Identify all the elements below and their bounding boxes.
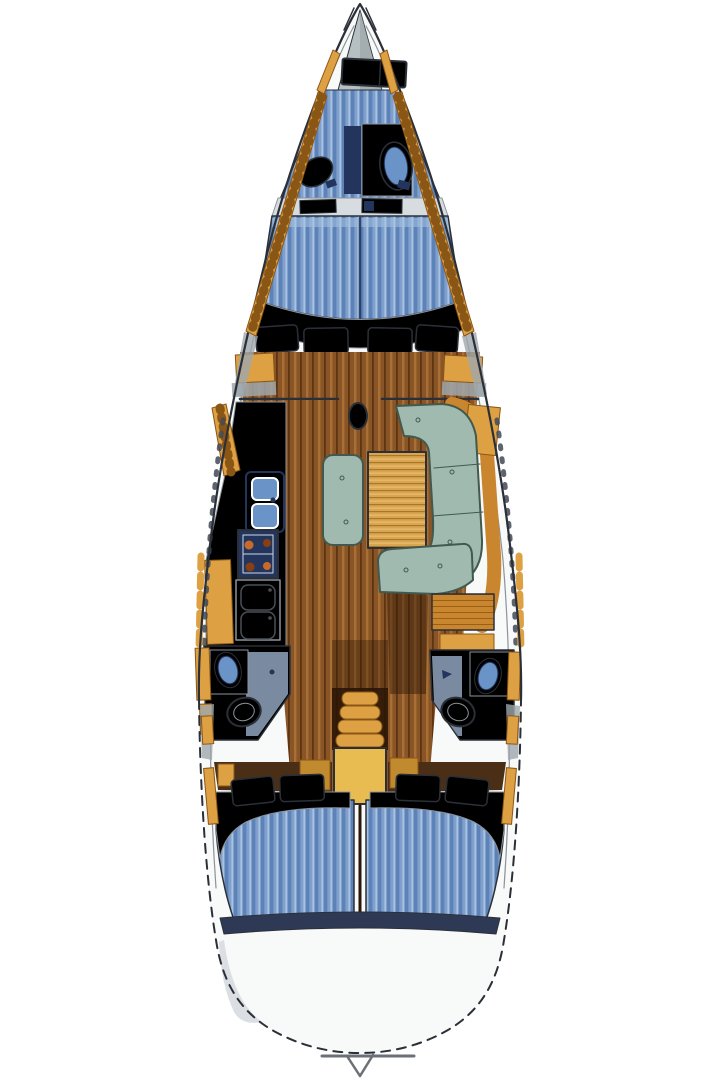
aft-locker-port [201, 716, 213, 745]
saloon-table [368, 452, 426, 548]
companionway [332, 688, 388, 750]
galley-locker [205, 560, 234, 645]
bulkhead-shelf [272, 198, 448, 216]
port-head-locker [195, 648, 211, 700]
swim-notch [347, 1055, 373, 1076]
nav-locker [440, 634, 494, 650]
floor-plan-svg [0, 0, 719, 1080]
galley-fridge [236, 580, 280, 640]
boat-floor-plan [0, 0, 719, 1080]
aft-locker-starboard [506, 716, 518, 745]
companionway-shadow [332, 640, 388, 690]
port-head-door-knob [270, 670, 275, 675]
mast-step [349, 403, 367, 429]
galley-stove [238, 530, 278, 578]
settee-aft [378, 544, 473, 594]
galley [205, 402, 286, 655]
starboard-head-locker [507, 652, 521, 700]
galley-sink [246, 472, 284, 532]
bow-cabin-locker [344, 126, 361, 194]
nav-table [432, 594, 494, 630]
wardrobe-band [232, 352, 487, 400]
settee-center [323, 455, 363, 545]
